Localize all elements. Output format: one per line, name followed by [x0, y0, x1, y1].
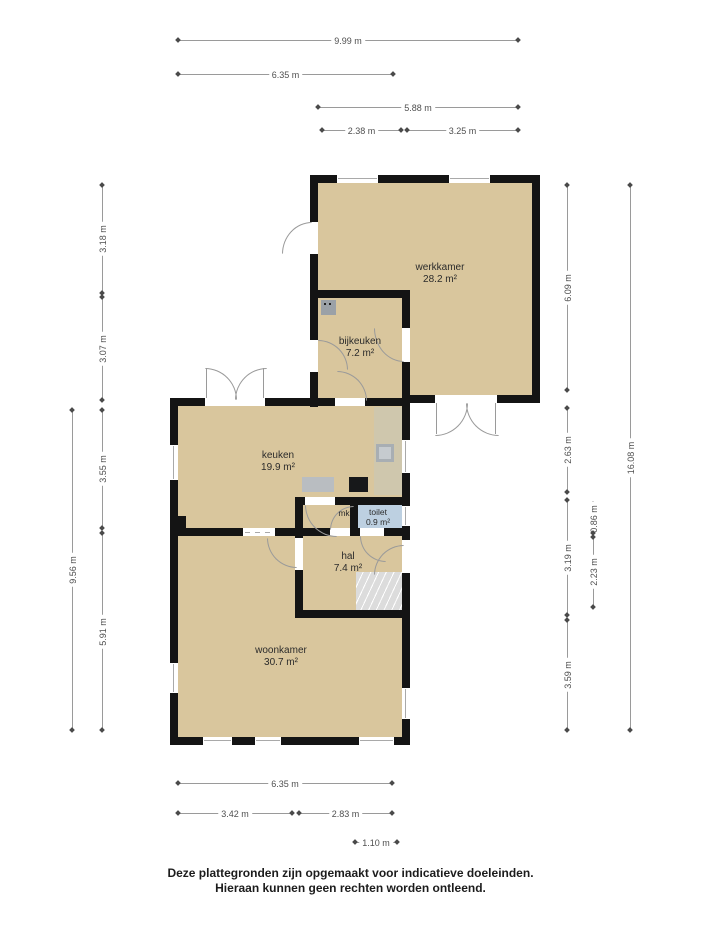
dimension-line: 3.59 m [567, 620, 568, 730]
dimension-label: 5.88 m [401, 103, 435, 113]
disclaimer-line-1: Deze plattegronden zijn opgemaakt voor i… [0, 866, 701, 881]
dimension-label: 1.10 m [359, 838, 393, 848]
door-leaf [206, 368, 207, 398]
appliance-icon [321, 300, 336, 315]
dimension-label: 3.07 m [98, 332, 108, 366]
wall [295, 610, 410, 618]
dimension-label: 3.18 m [98, 222, 108, 256]
room-area: 28.2 m² [380, 274, 500, 286]
door-opening [360, 528, 384, 536]
room-label-werkkamer: werkkamer 28.2 m² [380, 262, 500, 286]
room-name: hal [308, 551, 388, 563]
dimension-label: 5.91 m [98, 615, 108, 649]
dimension-label: 3.55 m [98, 452, 108, 486]
dimension-label: 3.19 m [563, 541, 573, 575]
room-name: werkkamer [380, 262, 500, 274]
dimension-line: 2.63 m [567, 408, 568, 492]
room-label-toilet: toilet 0.9 m² [352, 507, 404, 527]
dimension-line: 2.83 m [299, 813, 392, 814]
dimension-label: 9.56 m [68, 553, 78, 587]
stairs [356, 572, 402, 610]
dimension-line: 0.86 m [593, 504, 594, 533]
dimension-label: 2.63 m [563, 433, 573, 467]
dimension-label: 2.83 m [329, 809, 363, 819]
dimension-line: 5.91 m [102, 533, 103, 730]
room-area: 7.4 m² [308, 563, 388, 575]
dimension-line: 9.99 m [178, 40, 518, 41]
dimension-label: 3.42 m [218, 809, 252, 819]
kitchen-counter-segment [302, 477, 334, 492]
window [449, 175, 490, 183]
window [170, 445, 178, 480]
disclaimer: Deze plattegronden zijn opgemaakt voor i… [0, 866, 701, 896]
room-name: bijkeuken [310, 336, 410, 348]
door-leaf [263, 368, 264, 398]
window [255, 737, 281, 745]
room-area: 30.7 m² [221, 657, 341, 669]
room-area: 0.9 m² [352, 517, 404, 527]
double-door-arc [435, 403, 468, 436]
dimension-label: 6.09 m [563, 271, 573, 305]
window [402, 440, 410, 473]
window [337, 175, 378, 183]
room-name: keuken [218, 450, 338, 462]
disclaimer-line-2: Hieraan kunnen geen rechten worden ontle… [0, 881, 701, 896]
wall-pier [170, 516, 186, 530]
kitchen-sink [376, 444, 394, 462]
dimension-label: 3.25 m [446, 126, 480, 136]
dimension-label: 0.86 m [589, 502, 599, 536]
dimension-line: 16.08 m [630, 185, 631, 730]
dimension-label: 2.23 m [589, 555, 599, 589]
double-door-arc [205, 368, 237, 400]
dimension-line: 3.07 m [102, 297, 103, 400]
door-opening [305, 497, 335, 505]
dimension-line: 1.10 m [355, 842, 397, 843]
window [402, 688, 410, 719]
dimension-line: 6.35 m [178, 783, 392, 784]
dimension-line: 3.25 m [407, 130, 518, 131]
room-label-bijkeuken: bijkeuken 7.2 m² [310, 336, 410, 360]
dimension-line: 9.56 m [72, 410, 73, 730]
window [359, 737, 394, 745]
exterior-door-arc [282, 222, 312, 254]
dimension-label: 2.38 m [345, 126, 379, 136]
dimension-label: 6.35 m [269, 70, 303, 80]
floorplan: 9.99 m 6.35 m 5.88 m 2.38 m 3.25 m 3.18 … [0, 0, 701, 934]
window [170, 663, 178, 693]
dimension-line: 3.42 m [178, 813, 292, 814]
wall [178, 528, 303, 536]
dimension-label: 3.59 m [563, 658, 573, 692]
wall [310, 290, 410, 298]
room-name: toilet [352, 507, 404, 517]
dimension-line: 2.38 m [322, 130, 401, 131]
room-label-mk: mk [334, 508, 354, 518]
window [203, 737, 232, 745]
room-label-keuken: keuken 19.9 m² [218, 450, 338, 474]
room-area: 19.9 m² [218, 462, 338, 474]
dimension-line: 6.09 m [567, 185, 568, 390]
wall-opening [243, 528, 275, 536]
room-name: mk [334, 508, 354, 518]
dimension-line: 5.88 m [318, 107, 518, 108]
cooktop [349, 477, 368, 492]
door-leaf [495, 403, 496, 434]
dimension-label: 16.08 m [626, 438, 636, 477]
room-area: 7.2 m² [310, 348, 410, 360]
wall [532, 175, 540, 403]
room-label-hal: hal 7.4 m² [308, 551, 388, 575]
room-name: woonkamer [221, 645, 341, 657]
dimension-line: 3.19 m [567, 500, 568, 615]
door-leaf [436, 403, 437, 434]
room-label-woonkamer: woonkamer 30.7 m² [221, 645, 341, 669]
dimension-label: 6.35 m [268, 779, 302, 789]
door-opening [435, 395, 497, 403]
dimension-line: 2.23 m [593, 537, 594, 607]
dimension-line: 6.35 m [178, 74, 393, 75]
dimension-line: 3.55 m [102, 410, 103, 528]
dimension-label: 9.99 m [331, 36, 365, 46]
dimension-line: 3.18 m [102, 185, 103, 293]
